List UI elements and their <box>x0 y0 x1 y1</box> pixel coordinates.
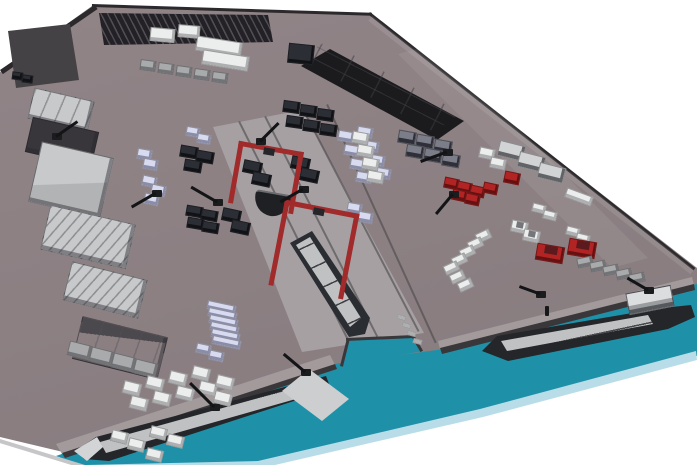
mooring-bollard <box>397 314 407 321</box>
gantry-crane <box>268 200 359 300</box>
ship-deck-crane <box>644 287 654 294</box>
crawler-crane <box>152 190 162 197</box>
red-cradle <box>535 243 566 265</box>
red-keel-block <box>503 170 521 185</box>
white-cradle <box>522 228 541 243</box>
steel-block <box>287 43 315 66</box>
crawler-crane <box>536 291 546 298</box>
crane-boom <box>435 193 454 215</box>
gray-pallet <box>157 62 174 75</box>
crawler-crane <box>256 138 266 145</box>
red-cradle <box>567 238 598 260</box>
white-pallet <box>127 437 146 453</box>
steel-block <box>316 108 335 122</box>
white-pallet <box>149 425 168 441</box>
white-pallet <box>110 429 129 445</box>
crane-boom <box>519 286 541 296</box>
gray-pallet <box>193 68 210 81</box>
white-truck <box>564 188 594 207</box>
lavender-pallet <box>357 211 374 224</box>
container <box>536 162 566 184</box>
lavender-pallet <box>196 133 212 145</box>
white-pallet <box>215 374 236 391</box>
white-box <box>542 209 558 221</box>
crawler-crane <box>299 186 309 193</box>
gray-pallet <box>175 65 192 78</box>
shipyard-3d-scene <box>0 0 697 465</box>
white-pallet <box>152 390 173 407</box>
deck-machine <box>405 144 425 160</box>
white-pallet <box>145 447 164 463</box>
mooring-bollard <box>413 338 423 345</box>
crawler-crane <box>449 191 459 198</box>
worker-figure <box>545 306 549 316</box>
steel-block <box>201 221 220 235</box>
cradle-notch <box>528 230 536 237</box>
lavender-pallet <box>142 158 159 171</box>
steel-block <box>299 104 318 118</box>
crawler-crane <box>213 199 223 206</box>
mooring-bollard <box>407 330 417 337</box>
crane-boom <box>55 120 78 137</box>
mooring-bollard <box>402 322 412 329</box>
steel-block <box>183 159 203 174</box>
crawler-crane <box>443 149 453 156</box>
gray-pallet <box>139 59 156 72</box>
white-pallet <box>166 433 185 449</box>
lavender-pallet <box>208 350 225 363</box>
steel-block <box>21 74 33 83</box>
gray-pallet <box>133 358 159 378</box>
steel-block <box>285 115 304 129</box>
crawler-crane <box>210 404 220 411</box>
gray-pallet <box>211 71 228 84</box>
cradle-notch <box>575 240 589 250</box>
vessel-crane <box>301 369 311 376</box>
steel-block <box>319 123 338 137</box>
cradle-notch <box>516 221 524 228</box>
crane-boom <box>259 122 279 142</box>
white-box <box>489 156 507 170</box>
white-pallet <box>129 395 150 412</box>
objects-layer <box>0 0 697 465</box>
crawler-crane <box>52 133 62 140</box>
cradle-notch <box>543 245 557 255</box>
hull-section <box>299 167 320 184</box>
crane-boom <box>190 186 217 203</box>
crane-boom <box>283 353 306 373</box>
hull-section <box>230 219 251 236</box>
red-keel-block <box>464 193 481 207</box>
steel-block <box>302 119 321 133</box>
steel-block <box>282 100 301 114</box>
white-roof <box>201 49 250 71</box>
white-roof <box>149 27 175 43</box>
